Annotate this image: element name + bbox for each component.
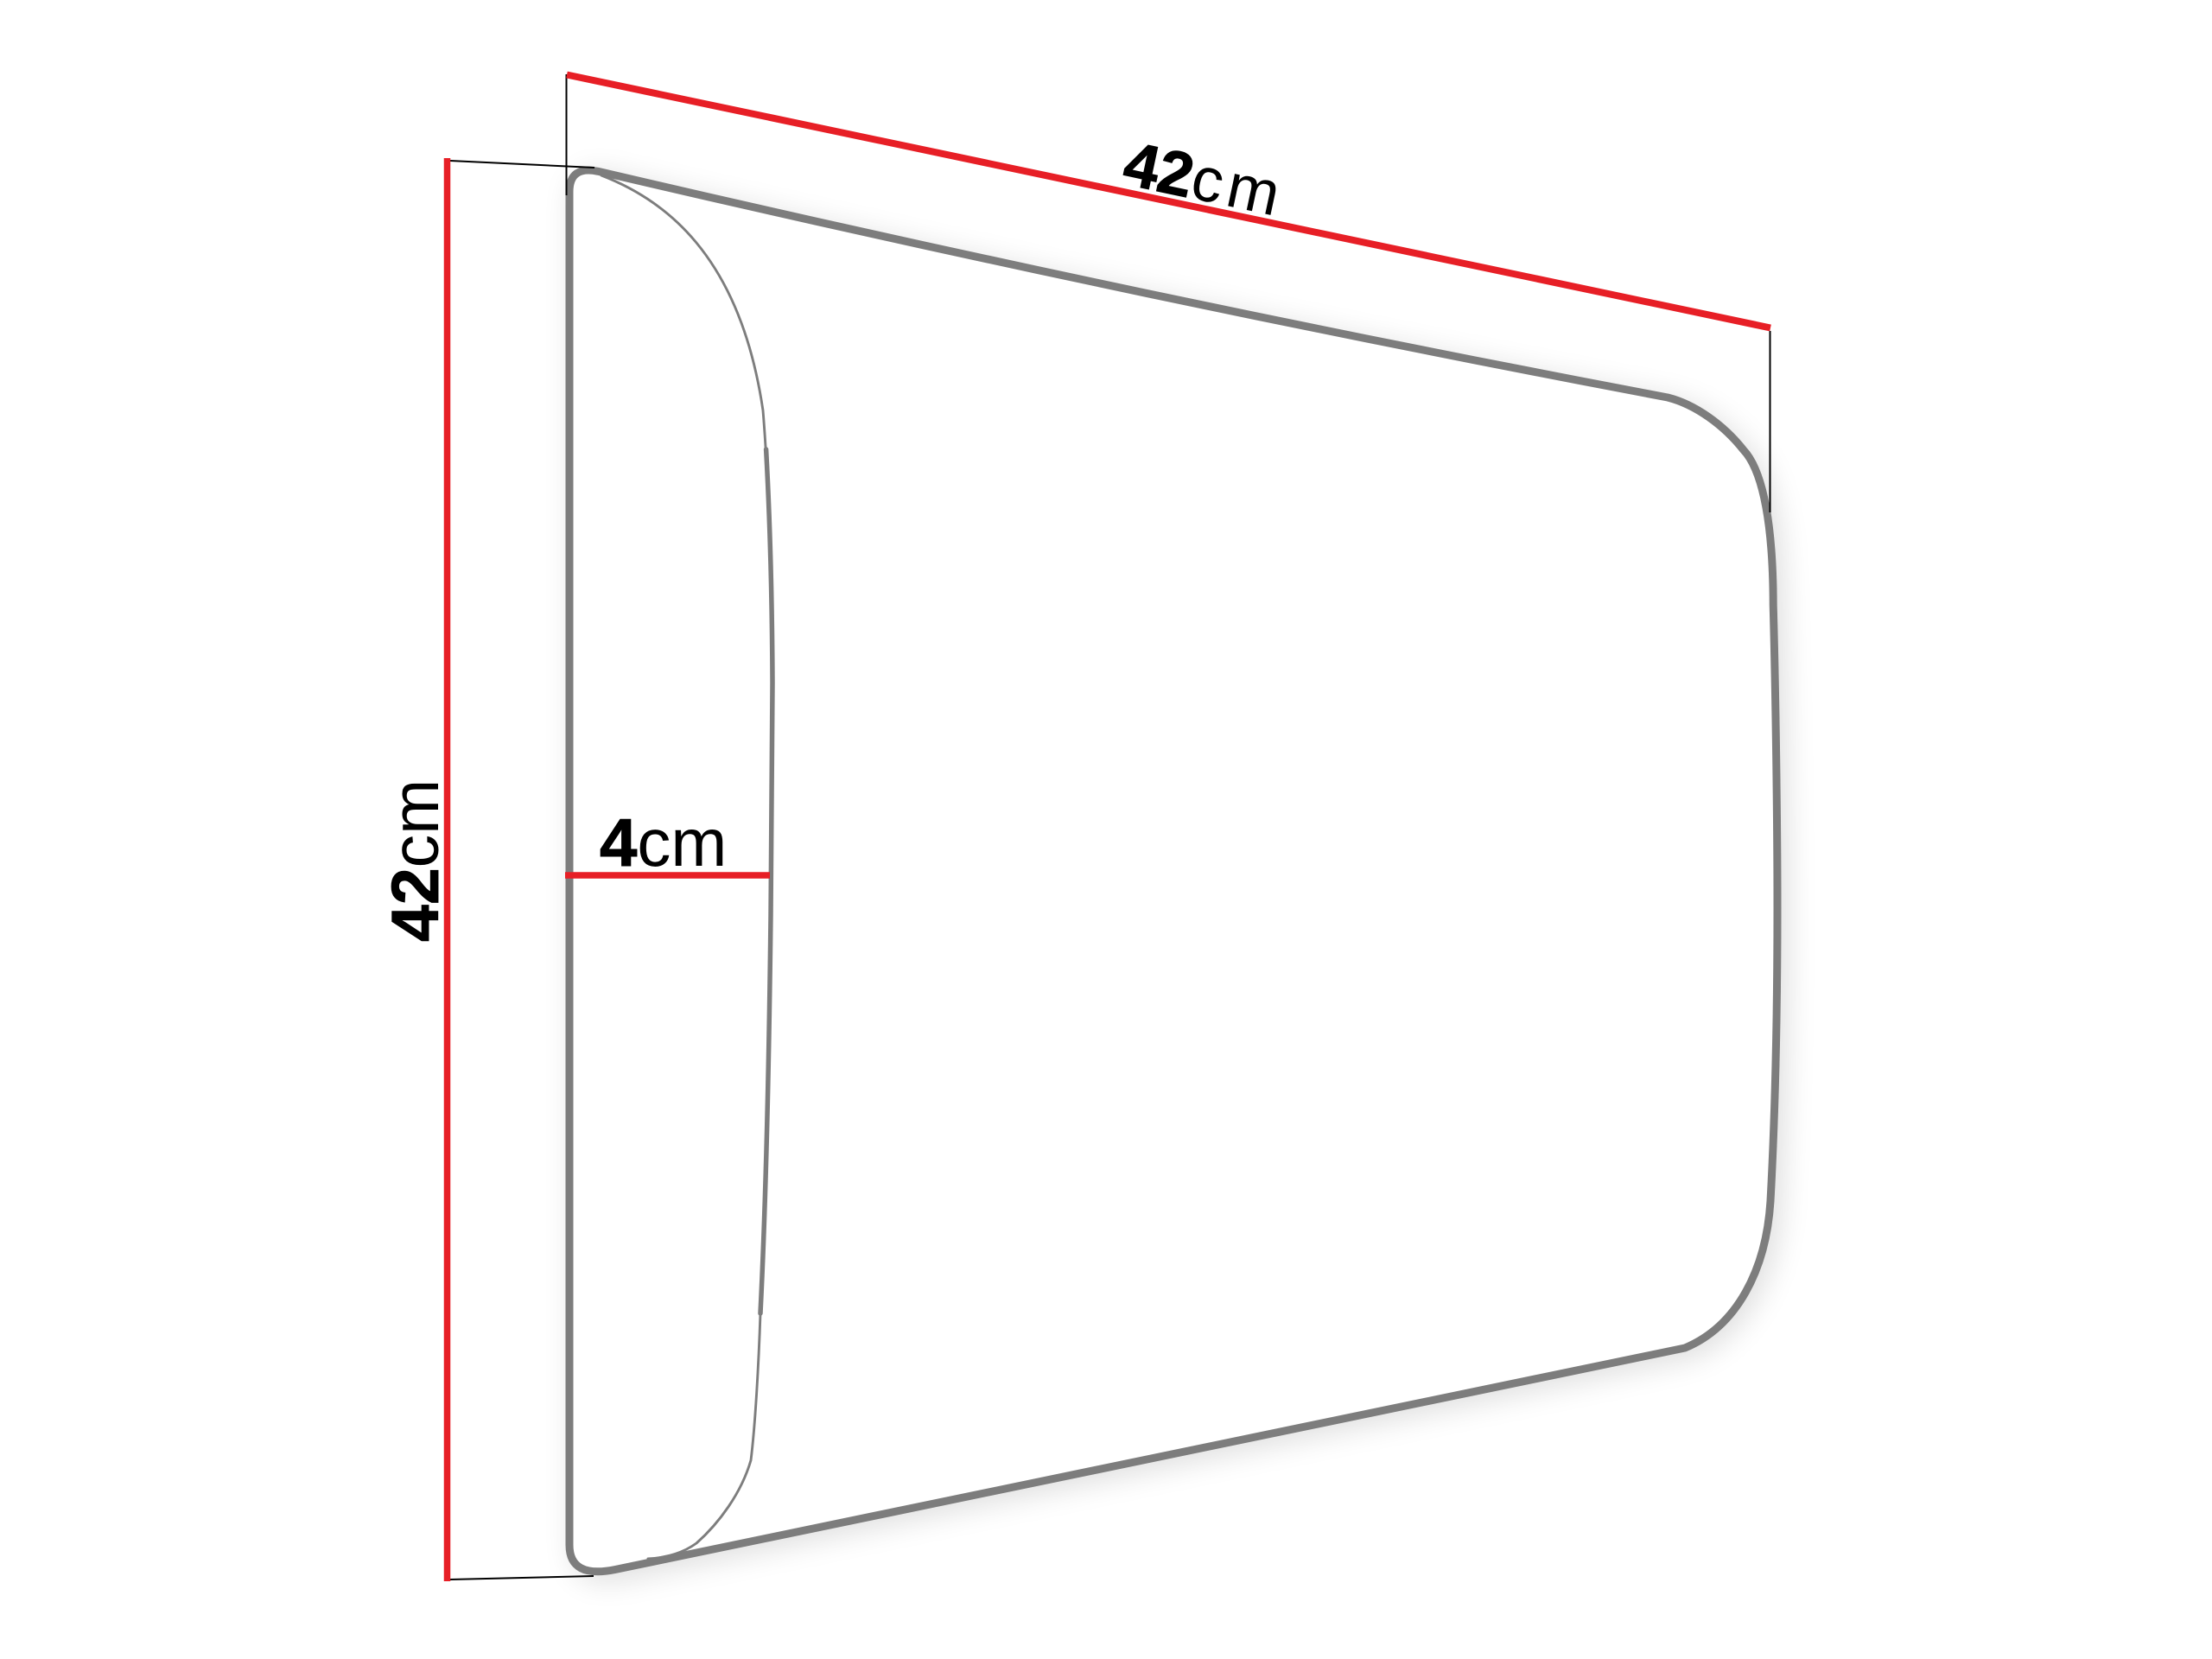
svg-text:4cm: 4cm (600, 804, 727, 880)
svg-text:42cm: 42cm (1118, 129, 1292, 230)
svg-text:42cm: 42cm (378, 779, 453, 942)
